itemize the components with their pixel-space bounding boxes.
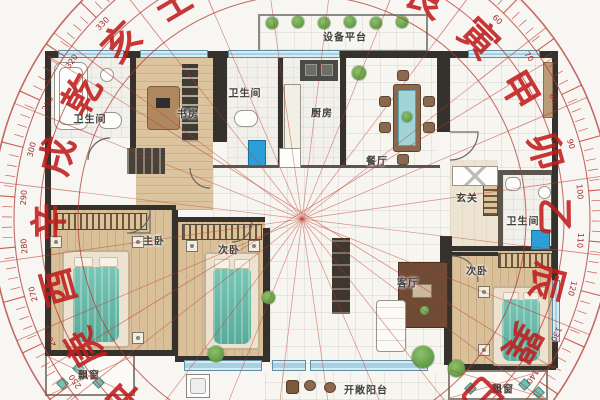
room-label-bay-window-right: 飘窗	[492, 381, 514, 396]
room-label-dining: 餐厅	[366, 153, 388, 168]
room-label-bedroom-middle: 次卧	[218, 242, 240, 257]
plan-doors-layer	[0, 0, 600, 400]
floorplan-compass-image: 卫生间 书房 卫生间 厨房 设备平台 餐厅 玄关 卫生间 主卧 次卧 客厅 次卧…	[0, 0, 600, 400]
room-label-master-bedroom: 主卧	[143, 233, 165, 248]
room-label-balcony: 开敞阳台	[344, 382, 388, 397]
room-label-study: 书房	[177, 106, 199, 121]
room-label-bathroom-middle: 卫生间	[229, 85, 262, 100]
room-label-bedroom-right: 次卧	[466, 263, 488, 278]
room-label-bathroom-top-left: 卫生间	[74, 111, 107, 126]
room-label-bathroom-right: 卫生间	[507, 213, 540, 228]
room-label-entry: 玄关	[456, 190, 478, 205]
room-label-kitchen: 厨房	[311, 105, 333, 120]
room-label-bay-window-left: 飘窗	[78, 367, 100, 382]
room-label-living-room: 客厅	[397, 275, 419, 290]
room-label-equipment-platform: 设备平台	[323, 29, 367, 44]
